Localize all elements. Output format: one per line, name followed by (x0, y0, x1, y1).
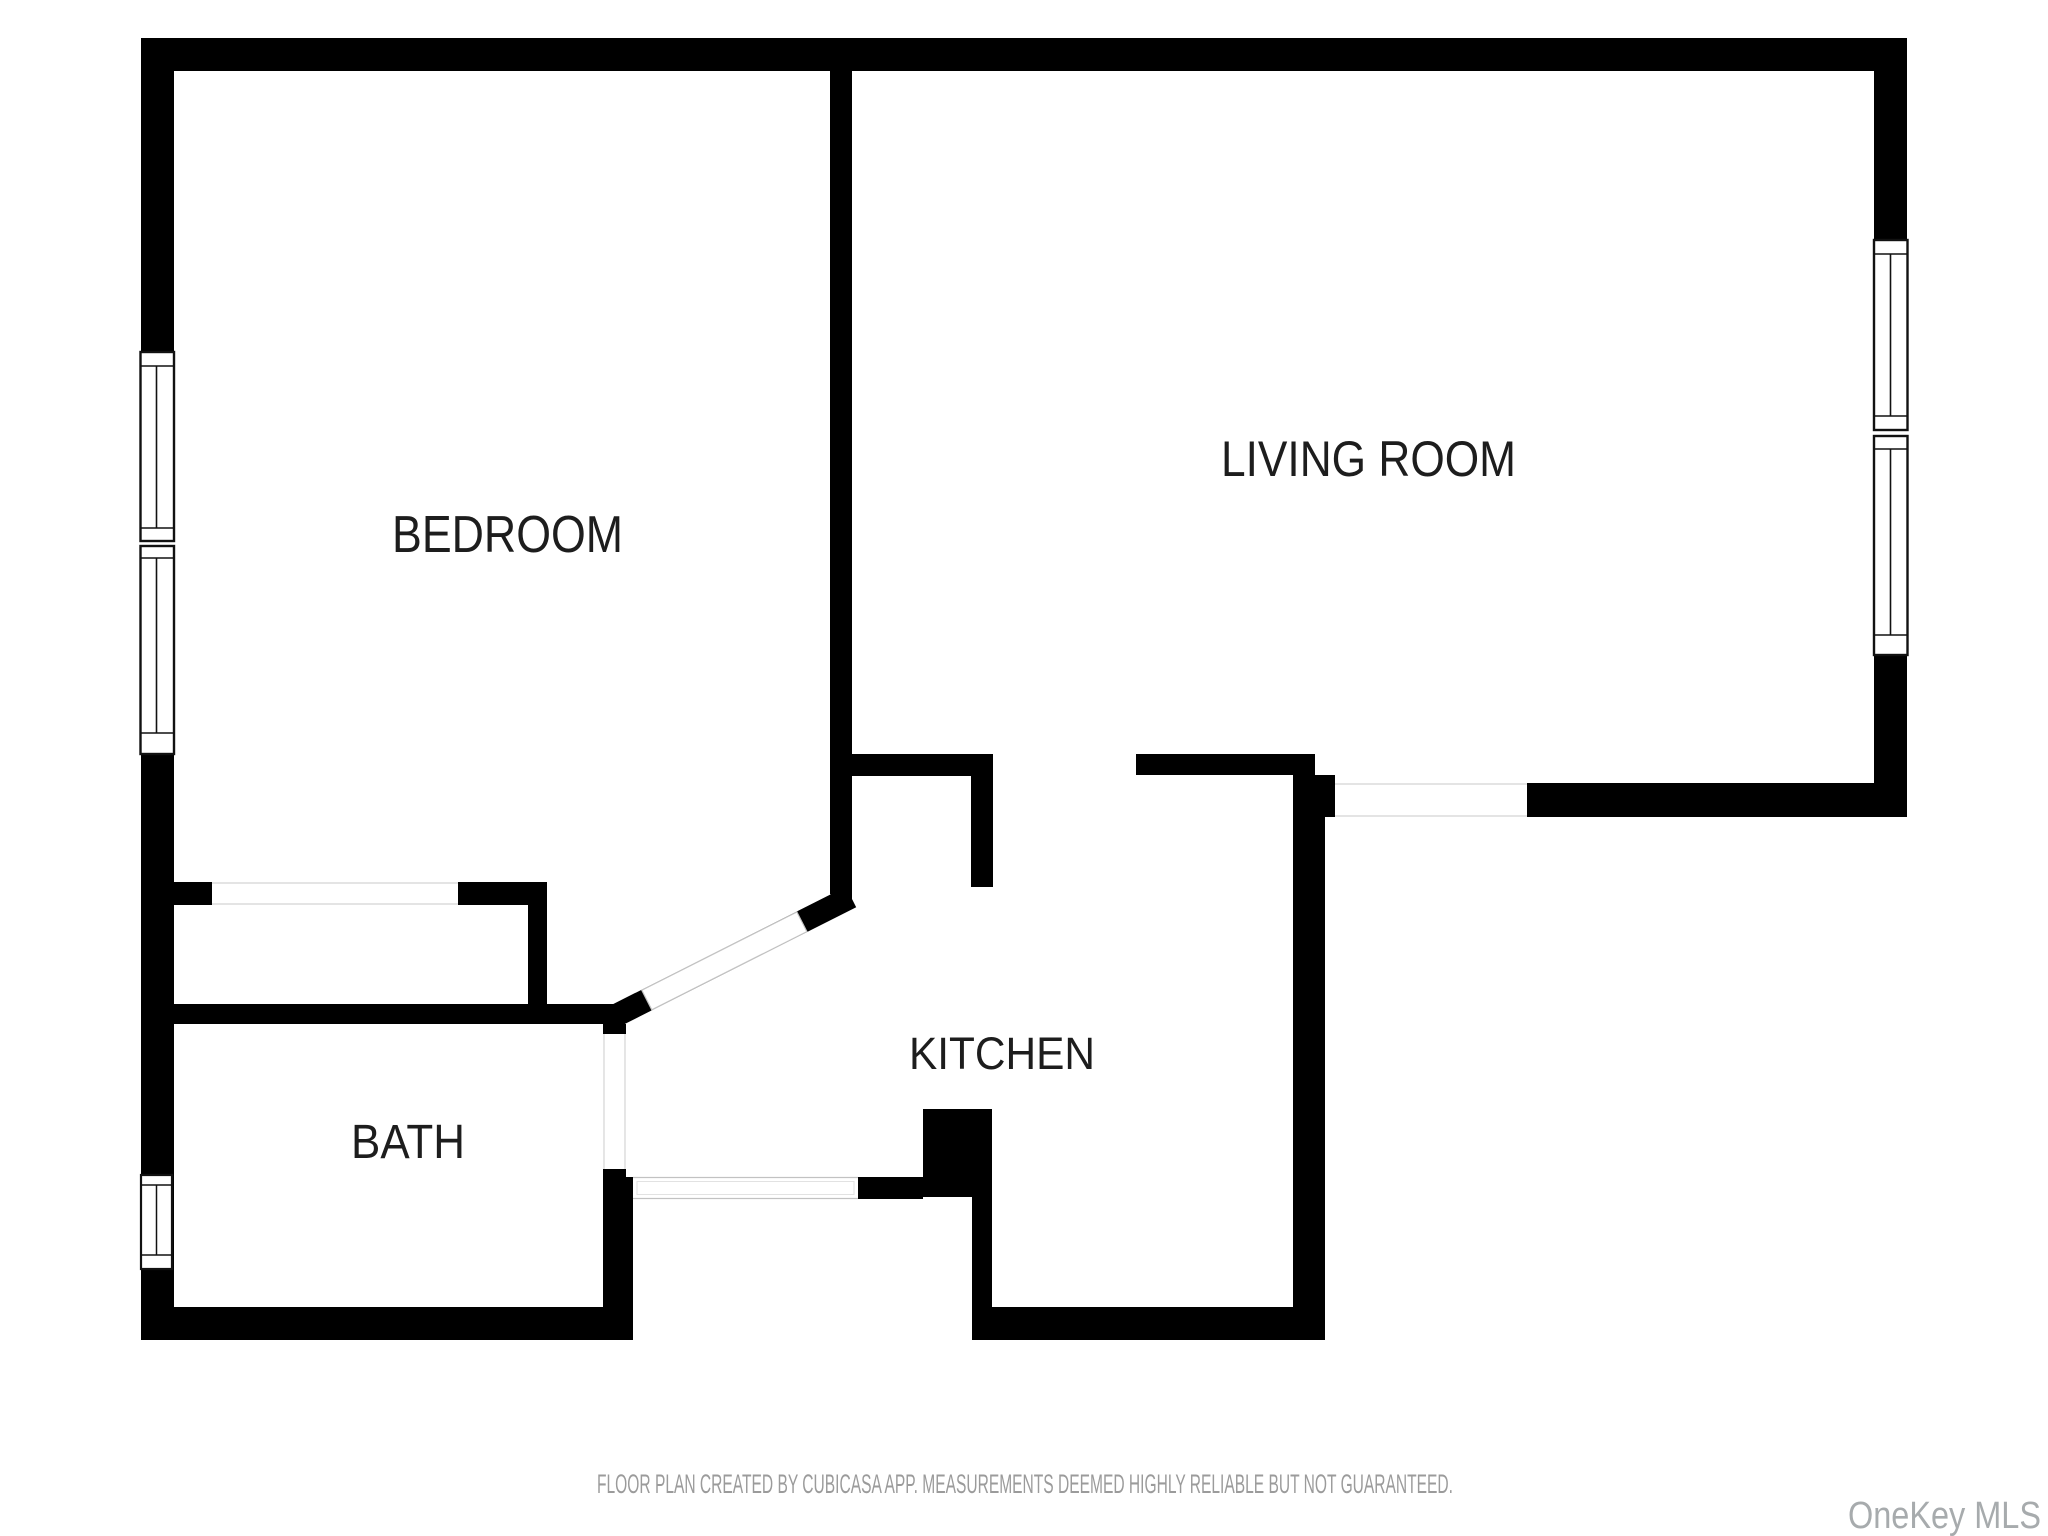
svg-text:KITCHEN: KITCHEN (909, 1028, 1095, 1079)
svg-text:BEDROOM: BEDROOM (392, 506, 623, 564)
svg-text:BATH: BATH (351, 1116, 465, 1169)
svg-text:LIVING ROOM: LIVING ROOM (1221, 431, 1516, 487)
svg-text:OneKey MLS: OneKey MLS (1848, 1495, 2041, 1536)
svg-text:FLOOR PLAN CREATED BY CUBICASA: FLOOR PLAN CREATED BY CUBICASA APP. MEAS… (597, 1469, 1453, 1499)
